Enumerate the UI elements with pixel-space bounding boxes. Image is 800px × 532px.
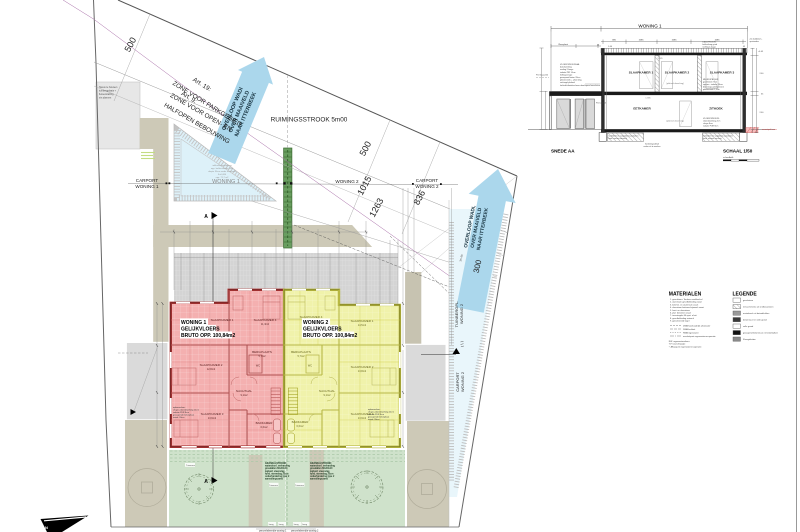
svg-text:14,5m2: 14,5m2 bbox=[358, 324, 367, 327]
svg-text:SLAAPKAMER 1: SLAAPKAMER 1 bbox=[629, 71, 654, 75]
svg-text:4. aluminium buitenschrijnwe: 4. aluminium buitenschrijnwerk zwart bbox=[670, 306, 704, 309]
svg-text:roofing 2-laags: roofing 2-laags bbox=[703, 47, 716, 49]
svg-text:schaalbalk: schaalbalk bbox=[723, 157, 734, 159]
svg-text:N: N bbox=[45, 525, 48, 530]
svg-text:BERGPLAATS: BERGPLAATS bbox=[252, 350, 272, 354]
svg-text:RW: regenwaterafvoer: RW: regenwaterafvoer bbox=[669, 340, 690, 343]
svg-text:GRASDALSTROOK:: GRASDALSTROOK: bbox=[265, 462, 287, 465]
svg-text:11,3m2: 11,3m2 bbox=[261, 323, 270, 326]
svg-text:A: A bbox=[204, 214, 208, 220]
svg-text:6,6m2: 6,6m2 bbox=[297, 425, 305, 428]
svg-text:WONING 2: WONING 2 bbox=[335, 179, 359, 184]
svg-text:MATERIALEN: MATERIALEN bbox=[669, 292, 702, 298]
svg-text:totaal: 20cm: totaal: 20cm bbox=[368, 418, 380, 421]
svg-text:CARPORT: CARPORT bbox=[416, 178, 439, 183]
svg-text:SLAAPKAMER 2: SLAAPKAMER 2 bbox=[351, 365, 374, 369]
svg-text:SLAAPKAMER 3: SLAAPKAMER 3 bbox=[710, 71, 735, 75]
svg-text:fund. steenslag 25cm: fund. steenslag 25cm bbox=[265, 472, 288, 475]
svg-text:terracimmento uit snelbouwstee: terracimmento uit snelbouwsteen bbox=[743, 306, 774, 309]
svg-text:DWA huishoudelijk afvalwater: DWA huishoudelijk afvalwater bbox=[683, 325, 711, 328]
svg-text:opstanden: opstanden bbox=[750, 40, 759, 43]
svg-text:WONING 1: WONING 1 bbox=[212, 179, 240, 185]
svg-text:WC: WC bbox=[308, 365, 312, 368]
svg-text:K=0,080: K=0,080 bbox=[218, 174, 227, 176]
svg-text:opp. 71,7 m2: opp. 71,7 m2 bbox=[216, 177, 230, 179]
svg-text:haag: haag bbox=[269, 524, 275, 526]
svg-text:gevelsteen: gevelsteen bbox=[743, 299, 754, 302]
svg-text:DWA faciliteit: DWA faciliteit bbox=[683, 328, 696, 331]
svg-text:isolatie PIR 14cm: isolatie PIR 14cm bbox=[560, 71, 576, 74]
svg-text:Peil carport: Peil carport bbox=[596, 102, 607, 105]
svg-text:1. gevelsteen: Terakon rood-: 1. gevelsteen: Terakon rood-bechel bbox=[670, 298, 703, 301]
svg-text:EETKAMER: EETKAMER bbox=[633, 107, 651, 111]
svg-text:haag: haag bbox=[279, 524, 285, 526]
svg-text:WONING 2: WONING 2 bbox=[415, 184, 439, 189]
svg-text:luchtdichtheidsscherm doorlope: luchtdichtheidsscherm doorlopend aanslui… bbox=[560, 84, 600, 87]
svg-text:BERGPLAATS: BERGPLAATS bbox=[291, 350, 311, 354]
svg-text:1585: 1585 bbox=[639, 40, 645, 42]
svg-text:13,9m2: 13,9m2 bbox=[208, 417, 217, 420]
svg-text:WONING 1: WONING 1 bbox=[181, 320, 206, 326]
svg-text:GRASDALSTROOK:: GRASDALSTROOK: bbox=[310, 462, 332, 465]
svg-text:1585: 1585 bbox=[672, 40, 678, 42]
svg-text:grasdallen 60x40x10: grasdallen 60x40x10 bbox=[310, 467, 333, 470]
svg-text:SLAAPKAMER 2: SLAAPKAMER 2 bbox=[665, 71, 690, 75]
svg-text:*: Afkoppunt regenwaterrecuper: *: Afkoppunt regenwaterrecuperatie bbox=[669, 345, 702, 348]
svg-text:fund. aanzet vorstvrij: fund. aanzet vorstvrij bbox=[703, 137, 722, 140]
svg-text:metselwerk uit betonblokken: metselwerk uit betonblokken bbox=[743, 312, 770, 315]
svg-text:aanvullingszand: aanvullingszand bbox=[265, 479, 283, 481]
svg-text:haag: haag bbox=[302, 524, 308, 526]
svg-text:(plafond afwerking): (plafond afwerking) bbox=[666, 82, 684, 85]
svg-text:haag: haag bbox=[294, 524, 300, 526]
svg-text:aansluitpunt regenwaterrecuper: aansluitpunt regenwaterrecuperatie bbox=[683, 335, 716, 338]
svg-text:opp. buffervolume 7m3: opp. buffervolume 7m3 bbox=[211, 167, 234, 170]
svg-text:WONING 1: WONING 1 bbox=[638, 24, 662, 29]
svg-text:legbed: steenslag: legbed: steenslag bbox=[265, 470, 285, 473]
svg-text:9,1m2: 9,1m2 bbox=[324, 394, 332, 397]
svg-text:13,8m2: 13,8m2 bbox=[358, 370, 367, 373]
svg-text:9. geisoleerend tegel: 9. geisoleerend tegel bbox=[670, 320, 690, 323]
svg-text:GELIJKVLOERS: GELIJKVLOERS bbox=[181, 327, 220, 333]
svg-text:CARPORT: CARPORT bbox=[136, 178, 159, 183]
svg-text:BRUTO OPP. 100,84m2: BRUTO OPP. 100,84m2 bbox=[181, 333, 236, 339]
svg-text:Tuinzone: Tuinzone bbox=[295, 485, 305, 487]
svg-text:LEGENDE: LEGENDE bbox=[733, 292, 758, 298]
svg-text:aanzetpeil terras: aanzetpeil terras bbox=[762, 128, 777, 131]
svg-text:Peil maaiveld: Peil maaiveld bbox=[536, 75, 548, 77]
svg-text:SNEDE AA: SNEDE AA bbox=[551, 149, 575, 154]
svg-text:+6.45: +6.45 bbox=[758, 51, 764, 53]
svg-text:BADKAMER: BADKAMER bbox=[256, 421, 274, 425]
svg-text:(plafond afwerking): (plafond afwerking) bbox=[666, 120, 684, 123]
svg-text:7. terrastegels 60 opnt. of: 7. terrastegels 60 opnt. of wit bbox=[670, 314, 697, 317]
svg-text:8. gevelbekleding zetwerk: 8. gevelbekleding zetwerk bbox=[670, 317, 695, 320]
svg-text:NACHTHAL: NACHTHAL bbox=[319, 389, 336, 393]
svg-text:VLOEROPBOUW AA:: VLOEROPBOUW AA: bbox=[560, 63, 580, 66]
svg-text:gewapend beton 20cm: gewapend beton 20cm bbox=[560, 76, 581, 79]
svg-text:5. hout: en aluminium: 5. hout: en aluminium bbox=[670, 309, 690, 312]
svg-text:isolatie PUR 8cm: isolatie PUR 8cm bbox=[703, 125, 719, 128]
svg-text:RWA regenwater: RWA regenwater bbox=[683, 332, 699, 335]
svg-text:infiltratievoorziening: infiltratievoorziening bbox=[212, 164, 232, 167]
svg-text:grasdallen 60x40x10: grasdallen 60x40x10 bbox=[265, 467, 288, 470]
svg-text:5,7m2: 5,7m2 bbox=[259, 355, 267, 358]
svg-text:ZITHOEK: ZITHOEK bbox=[709, 107, 723, 111]
svg-text:6,6m2: 6,6m2 bbox=[261, 426, 269, 429]
svg-text:1.585: 1.585 bbox=[645, 98, 651, 100]
svg-text:Fhoogtelatten: Fhoogtelatten bbox=[743, 338, 757, 341]
svg-text:SLAAPKAMER 4: SLAAPKAMER 4 bbox=[300, 315, 323, 319]
svg-text:waterdoorl. verharding: waterdoorl. verharding bbox=[310, 465, 335, 468]
svg-text:SLAAPKAMER 1: SLAAPKAMER 1 bbox=[351, 319, 374, 323]
svg-text:2. aluminium gevelbekleding: 2. aluminium gevelbekleding zwart bbox=[670, 301, 702, 304]
svg-text:Tuinzone: Tuinzone bbox=[269, 485, 279, 487]
svg-text:NACHTHAL: NACHTHAL bbox=[236, 389, 253, 393]
svg-text:Tuinzone: Tuinzone bbox=[186, 465, 196, 467]
svg-text:gewapend betonmuur en betonbal: gewapend betonmuur en betonbalken bbox=[743, 332, 779, 335]
svg-text:onderfundering type 2: onderfundering type 2 bbox=[310, 475, 335, 478]
svg-text:TV: toezichtsputje: TV: toezichtsputje bbox=[669, 343, 686, 346]
svg-text:waterdoorl. verharding: waterdoorl. verharding bbox=[265, 465, 290, 468]
svg-text:3. betimm. en aluminium zwar: 3. betimm. en aluminium zwart bbox=[670, 303, 699, 306]
svg-text:zie plannen: zie plannen bbox=[99, 97, 112, 100]
svg-text:onderfundering type 2: onderfundering type 2 bbox=[265, 475, 290, 478]
svg-text:WONING 2: WONING 2 bbox=[303, 320, 328, 326]
svg-text:WONING 2: WONING 2 bbox=[460, 371, 465, 392]
svg-text:1.585: 1.585 bbox=[657, 58, 663, 60]
svg-text:GELIJKVLOERS: GELIJKVLOERS bbox=[303, 327, 342, 333]
svg-text:13,9m2: 13,9m2 bbox=[358, 417, 367, 420]
svg-text:nader uit te werken: nader uit te werken bbox=[643, 145, 660, 148]
svg-text:totaal: 20cm: totaal: 20cm bbox=[173, 416, 185, 419]
svg-text:BRUTO OPP. 100,84m2: BRUTO OPP. 100,84m2 bbox=[303, 333, 358, 339]
svg-text:SLAAPKAMER 1: SLAAPKAMER 1 bbox=[211, 318, 234, 322]
svg-text:legbed: steenslag: legbed: steenslag bbox=[310, 470, 330, 473]
svg-text:fund. aanzet vorstvrij: fund. aanzet vorstvrij bbox=[608, 137, 627, 140]
svg-text:RUIMINGSSTROOK 5m00: RUIMINGSSTROOK 5m00 bbox=[271, 117, 348, 124]
svg-text:BADKAMER: BADKAMER bbox=[292, 420, 310, 424]
svg-text:diepte 30cm onder maaiveld: diepte 30cm onder maaiveld bbox=[208, 170, 236, 173]
svg-text:SLAAPKAMER 4: SLAAPKAMER 4 bbox=[254, 318, 277, 322]
svg-text:pleisterwerk 1,5cm: pleisterwerk 1,5cm bbox=[703, 88, 720, 91]
svg-text:pleisterwerk + afwerking: pleisterwerk + afwerking bbox=[560, 79, 582, 82]
svg-text:volle grond: volle grond bbox=[743, 325, 754, 328]
svg-text:aanvullingszand: aanvullingszand bbox=[310, 479, 328, 481]
svg-text:WONING 2: WONING 2 bbox=[459, 303, 464, 324]
svg-text:WONING 1: WONING 1 bbox=[135, 184, 159, 189]
svg-text:betonmuur ter volle grond: betonmuur ter volle grond bbox=[743, 319, 768, 322]
svg-text:Vloerplaat: Vloerplaat bbox=[558, 43, 568, 46]
svg-text:9,1m2: 9,1m2 bbox=[241, 394, 249, 397]
svg-text:SCHAAL 1/50: SCHAAL 1/50 bbox=[723, 149, 753, 154]
svg-text:SLAAPKAMER 3: SLAAPKAMER 3 bbox=[201, 412, 224, 416]
svg-text:6. plat: betonnen zwart: 6. plat: betonnen zwart bbox=[670, 312, 691, 315]
svg-text:WC: WC bbox=[256, 365, 260, 368]
svg-text:fund. steenslag 25cm: fund. steenslag 25cm bbox=[310, 472, 333, 475]
svg-text:SLAAPKAMER 2: SLAAPKAMER 2 bbox=[200, 363, 223, 367]
svg-text:5,7m2: 5,7m2 bbox=[298, 355, 306, 358]
svg-text:12,8m2: 12,8m2 bbox=[207, 368, 216, 371]
